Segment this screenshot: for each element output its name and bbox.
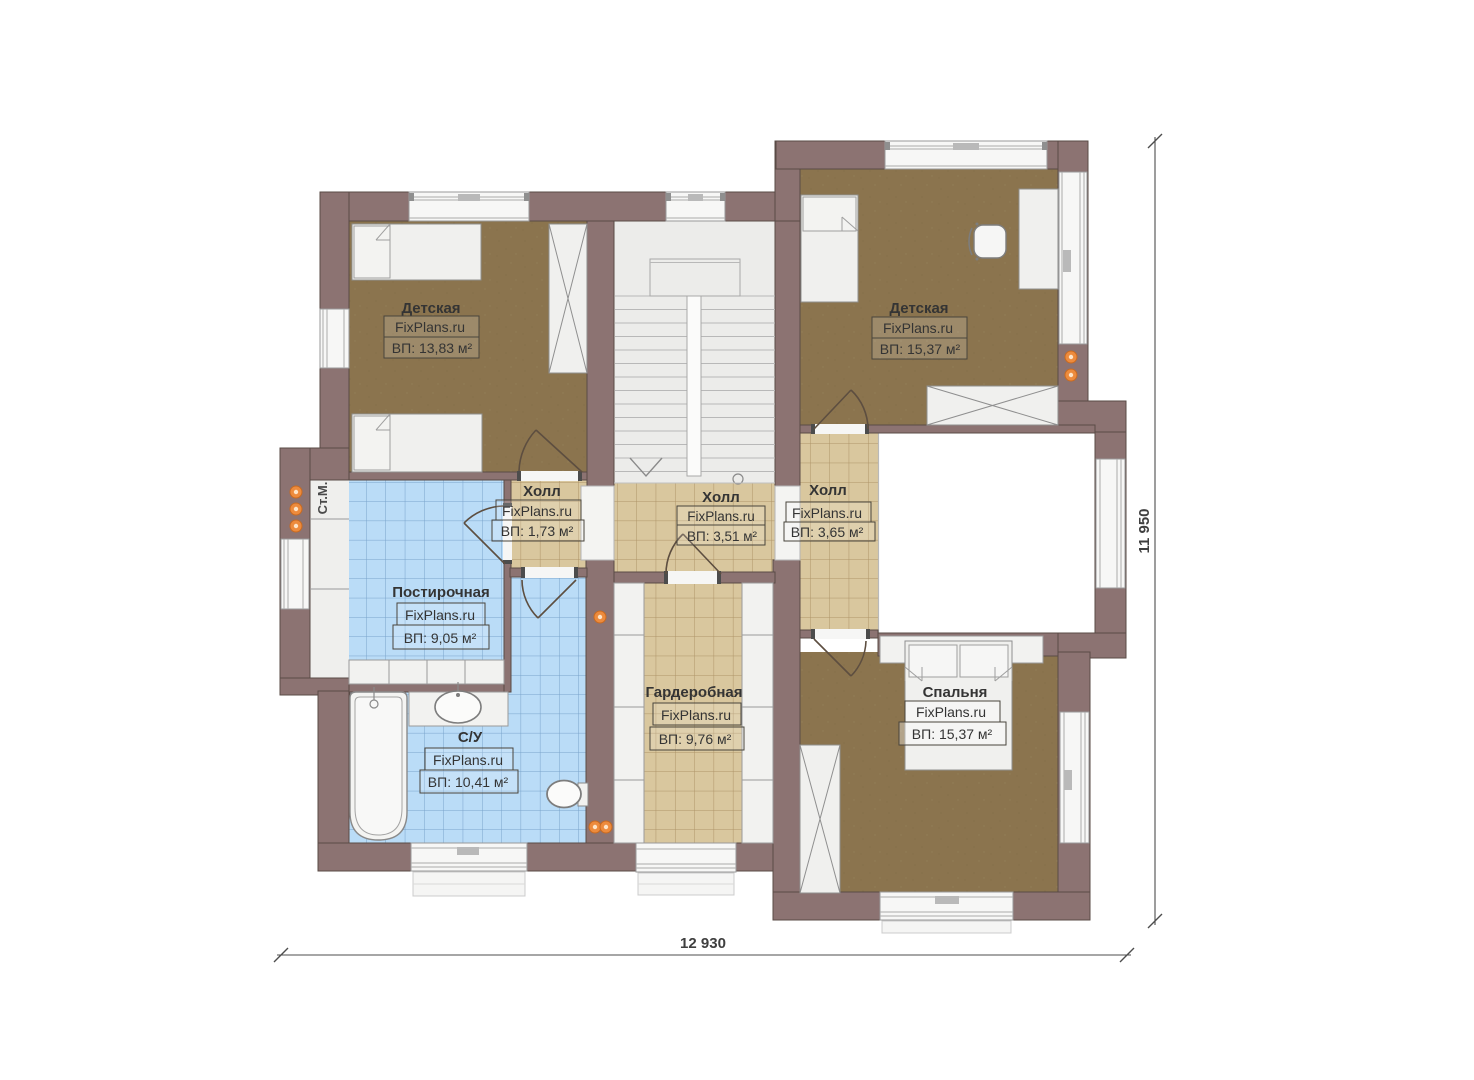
svg-text:FixPlans.ru: FixPlans.ru — [502, 503, 572, 519]
svg-text:Ст.М.: Ст.М. — [315, 482, 330, 515]
svg-text:Спальня: Спальня — [923, 684, 988, 701]
svg-text:FixPlans.ru: FixPlans.ru — [433, 752, 503, 768]
svg-text:ВП: 15,37 м²: ВП: 15,37 м² — [880, 341, 961, 357]
svg-text:Постирочная: Постирочная — [392, 584, 489, 601]
svg-text:12 930: 12 930 — [680, 935, 726, 952]
svg-text:ВП: 15,37 м²: ВП: 15,37 м² — [912, 726, 993, 742]
svg-text:FixPlans.ru: FixPlans.ru — [916, 704, 986, 720]
svg-text:FixPlans.ru: FixPlans.ru — [792, 505, 862, 521]
svg-text:ВП: 10,41 м²: ВП: 10,41 м² — [428, 774, 509, 790]
svg-text:Холл: Холл — [523, 483, 561, 500]
svg-text:Детская: Детская — [889, 300, 948, 317]
svg-text:ВП: 3,65 м²: ВП: 3,65 м² — [791, 524, 864, 540]
svg-text:ВП: 9,76 м²: ВП: 9,76 м² — [659, 731, 732, 747]
svg-text:FixPlans.ru: FixPlans.ru — [883, 320, 953, 336]
svg-text:Детская: Детская — [401, 300, 460, 317]
svg-text:Гардеробная: Гардеробная — [645, 684, 742, 701]
svg-text:FixPlans.ru: FixPlans.ru — [687, 509, 755, 524]
svg-text:ВП: 1,73 м²: ВП: 1,73 м² — [501, 523, 574, 539]
svg-text:ВП: 13,83 м²: ВП: 13,83 м² — [392, 340, 473, 356]
svg-text:FixPlans.ru: FixPlans.ru — [395, 319, 465, 335]
svg-text:11 950: 11 950 — [1136, 508, 1153, 553]
svg-text:ВП: 3,51 м²: ВП: 3,51 м² — [687, 529, 758, 544]
svg-text:С/У: С/У — [458, 729, 483, 746]
svg-text:FixPlans.ru: FixPlans.ru — [661, 707, 731, 723]
svg-text:FixPlans.ru: FixPlans.ru — [405, 607, 475, 623]
svg-text:Холл: Холл — [809, 482, 847, 499]
svg-text:Холл: Холл — [702, 489, 740, 506]
svg-text:ВП: 9,05 м²: ВП: 9,05 м² — [404, 630, 477, 646]
